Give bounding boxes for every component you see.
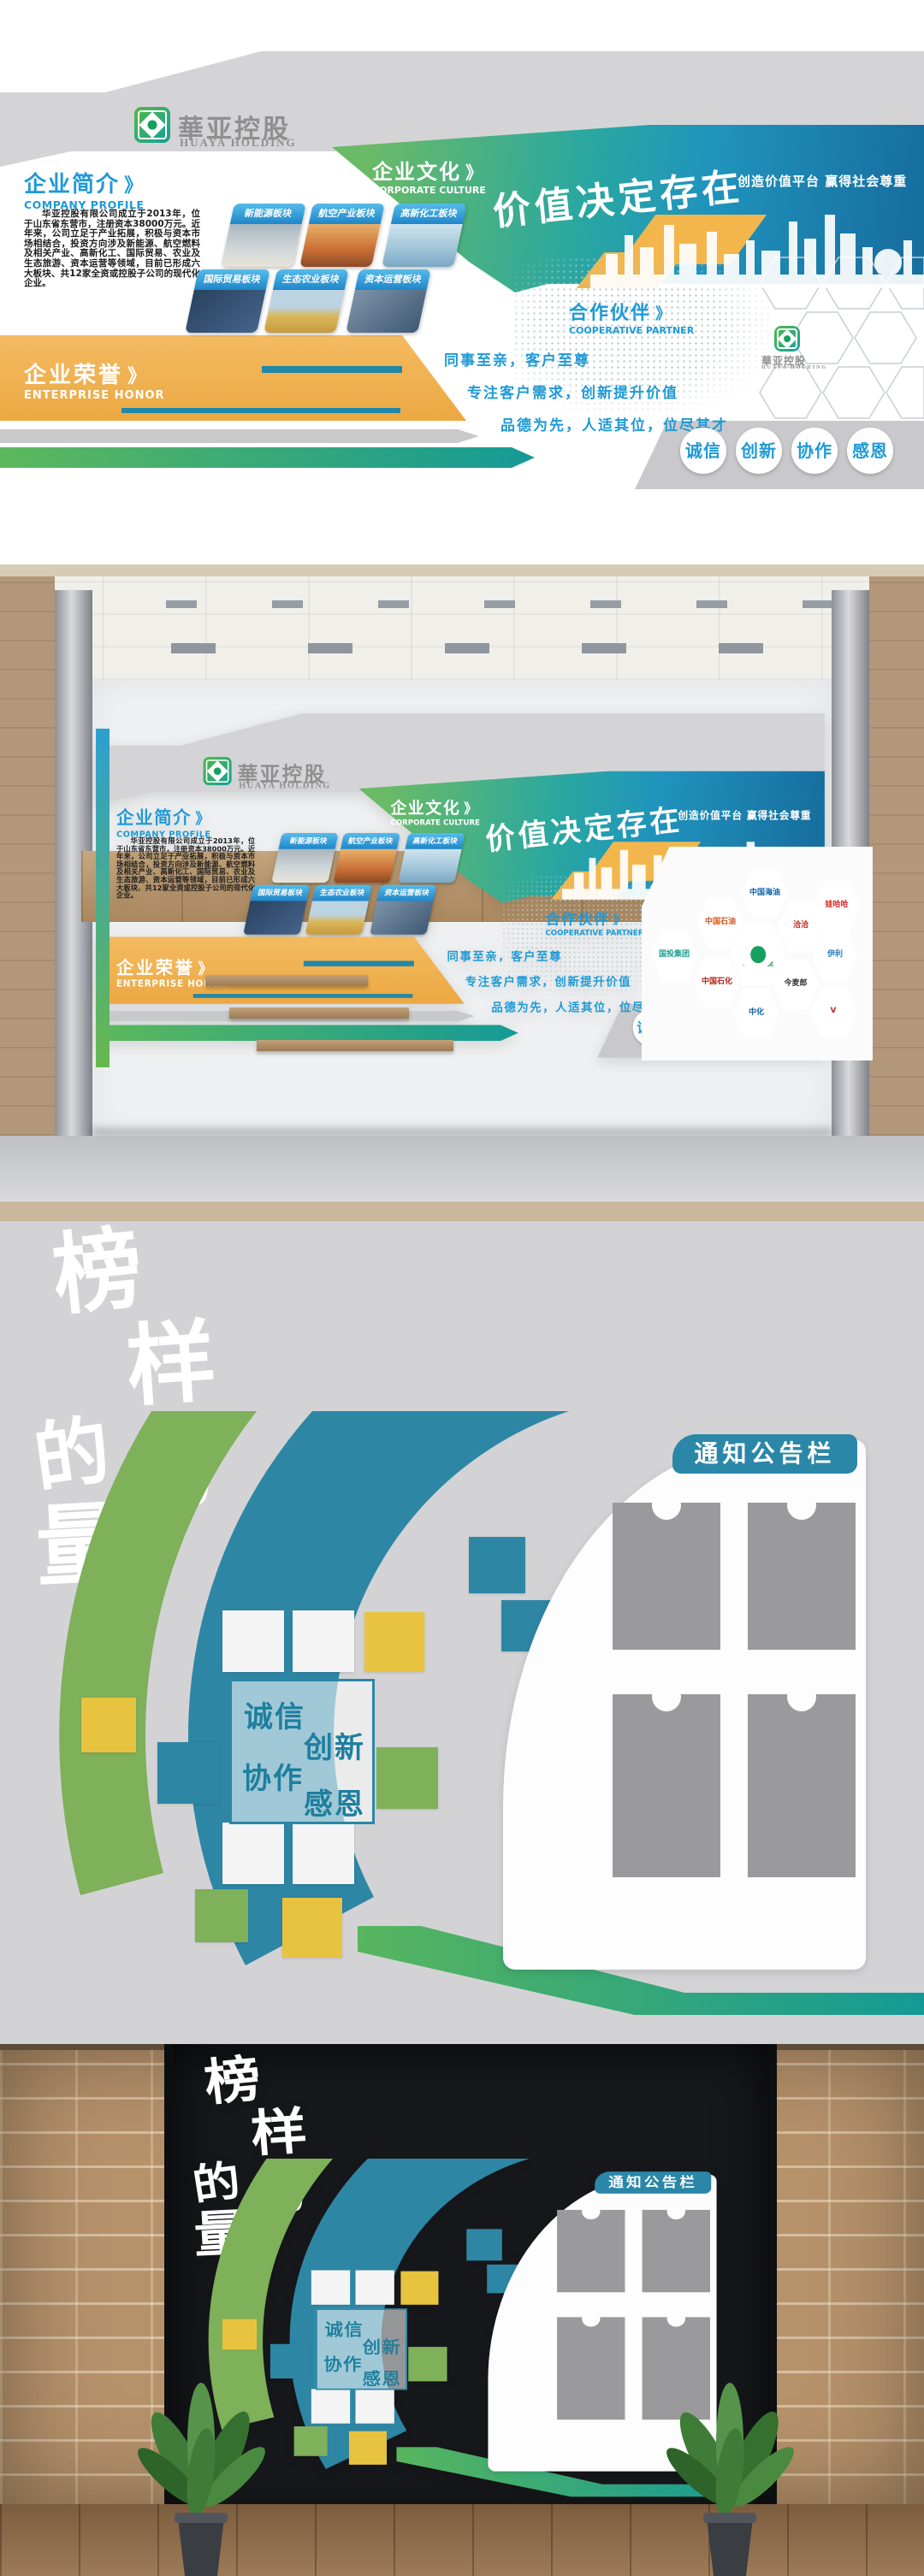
honor-heading: 企业荣誉 》 ENTERPRISE HONOR	[24, 357, 165, 402]
sector-tile: 国际贸易板块	[243, 885, 310, 935]
culture-title-cn: 企业文化	[390, 799, 460, 818]
ceiling-lights-row	[60, 600, 864, 608]
green-stripe	[98, 1025, 518, 1041]
side-wall-right	[869, 576, 924, 1223]
mosaic-square	[282, 1898, 342, 1958]
sector-tile: 高新化工板块	[382, 204, 467, 267]
sector-photo	[305, 901, 369, 935]
value-word: 创新	[304, 1724, 365, 1766]
mosaic-square	[349, 2431, 387, 2465]
value-circle: 感恩	[847, 428, 893, 474]
motto-line: 同事至亲，客户至尊	[447, 947, 562, 964]
mosaic-square	[408, 2347, 447, 2381]
title-char: 榜	[49, 1223, 146, 1320]
culture-subslogan: 创造价值平台 赢得社会尊重	[678, 808, 811, 823]
sector-photo	[346, 290, 427, 333]
value-word: 协作	[323, 2351, 362, 2374]
profile-body-text: 华亚控股有限公司成立于2013年，位于山东省东营市，注册资本38000万元。近年…	[116, 838, 255, 901]
sector-tile: 国际贸易板块	[185, 269, 270, 333]
culture-title-cn: 企业文化	[372, 160, 461, 184]
sector-tile: 资本运营板块	[370, 885, 436, 935]
sector-label: 国际贸易板块	[194, 269, 270, 290]
profile-heading: 企业简介 》 COMPANY PROFILE	[24, 167, 144, 211]
sector-tile: 航空产业板块	[334, 833, 400, 883]
mosaic-square	[466, 2229, 502, 2260]
profile-body-text: 华亚控股有限公司成立于2013年，位于山东省东营市，注册资本38000万元。近年…	[24, 210, 200, 289]
chevron-icon: 》	[655, 305, 671, 323]
culture-heading: 企业文化 》 CORPORATE CULTURE	[390, 795, 480, 827]
title-char: 样	[123, 1316, 218, 1411]
sector-tile: 生态农业板块	[264, 269, 349, 333]
mosaic-square	[222, 1610, 284, 1672]
wood-shelf	[229, 1007, 409, 1019]
sector-photo	[185, 290, 266, 333]
design1-placement: 華亚控股 HUAYA HOLDING 企业简介 》 COMPANY PROFIL…	[0, 47, 924, 516]
gray-stripe	[0, 429, 479, 443]
mosaic-square	[400, 2272, 438, 2305]
partner-label: 中国海油	[749, 889, 780, 898]
sector-photo	[334, 849, 397, 883]
mosaic-square	[469, 1537, 525, 1593]
value-word: 感恩	[363, 2366, 401, 2389]
sector-label: 新能源板块	[230, 204, 306, 224]
sector-label: 新能源板块	[279, 833, 339, 849]
sector-photo	[264, 290, 345, 333]
sector-tile: 新能源板块	[221, 204, 306, 267]
sector-label: 航空产业板块	[309, 204, 385, 224]
sector-label: 资本运营板块	[355, 269, 431, 290]
culture-title-en: CORPORATE CULTURE	[390, 818, 480, 827]
sector-label: 生态农业板块	[312, 885, 372, 901]
mosaic-square	[364, 1612, 424, 1672]
partner-label: 娃哈哈	[825, 901, 848, 910]
mosaic-square	[311, 2389, 350, 2423]
honor-title-cn: 企业荣誉	[24, 363, 123, 388]
render-dark: 榜 样 的 力 量 诚信	[0, 2044, 924, 2576]
value-word: 诚信	[244, 1693, 305, 1735]
value-word: 感恩	[304, 1781, 365, 1823]
partner-heading: 合作伙伴 》 COOPERATIVE PARTNER	[569, 298, 694, 336]
culture-wall-design: 華亚控股 HUAYA HOLDING 企业简介 》 COMPANY PROFIL…	[0, 47, 924, 516]
sector-label: 高新化工板块	[391, 204, 467, 224]
value-word: 创新	[363, 2334, 401, 2357]
motto-line: 同事至亲，客户至尊	[444, 348, 590, 369]
chevron-icon: 》	[127, 366, 146, 387]
wood-shelf	[205, 975, 368, 986]
logo-name-en: HUAYA HOLDING	[180, 136, 297, 150]
sector-tile: 高新化工板块	[398, 833, 465, 883]
sector-photo	[398, 849, 461, 883]
mosaic-square	[293, 1610, 354, 1672]
title-char: 榜	[202, 2053, 264, 2108]
honor-title-cn: 企业荣誉	[116, 958, 194, 978]
partner-label: 中化	[749, 1009, 764, 1018]
sector-tile: 航空产业板块	[299, 204, 385, 267]
sector-tile: 新能源板块	[271, 833, 338, 883]
motto-line: 专注客户需求，创新提升价值	[465, 972, 631, 990]
mosaic-square	[311, 2270, 350, 2304]
sector-label: 航空产业板块	[341, 833, 400, 849]
sector-label: 国际贸易板块	[250, 885, 310, 901]
teal-rule	[304, 961, 414, 966]
partner-title-cn: 合作伙伴	[545, 911, 610, 928]
huaya-logo-icon	[204, 757, 232, 785]
wood-shelf	[257, 1040, 453, 1051]
value-circle: 协作	[791, 428, 838, 474]
green-stripe	[0, 447, 535, 468]
mosaic-square	[294, 2426, 328, 2456]
huaya-logo-icon-small	[774, 326, 800, 352]
partner-title-en: COOPERATIVE PARTNER	[569, 325, 694, 336]
sector-label: 生态农业板块	[273, 269, 349, 290]
potted-plant-left	[128, 2366, 274, 2576]
teal-rule	[121, 408, 400, 413]
notice-pocket	[748, 1694, 856, 1877]
partner-title-cn: 合作伙伴	[569, 303, 651, 324]
partner-label: 国投集团	[659, 951, 690, 960]
value-word: 诚信	[325, 2317, 364, 2340]
sector-photo	[243, 901, 306, 935]
mosaic-square	[355, 2270, 394, 2304]
sector-photo	[221, 224, 302, 267]
culture-heading: 企业文化 》 CORPORATE CULTURE	[372, 155, 486, 196]
profile-title-cn: 企业简介	[24, 172, 120, 198]
partner-label: 伊利	[827, 951, 843, 960]
sector-tile: 生态农业板块	[305, 885, 372, 935]
sector-photo	[299, 224, 381, 267]
logo-name-en-small: HUAYA HOLDING	[761, 365, 827, 370]
mosaic-square	[376, 1747, 438, 1809]
mosaic-square	[81, 1698, 136, 1752]
huaya-logo-icon	[749, 940, 767, 959]
ceiling	[0, 564, 924, 680]
profile-heading: 企业简介 》 COMPANY PROFILE	[116, 804, 210, 839]
notice-pocket	[557, 2317, 625, 2419]
culture-subslogan: 创造价值平台 赢得社会尊重	[737, 172, 907, 190]
notice-board-title: 通知公告栏	[595, 2171, 711, 2194]
huaya-logo-icon	[134, 107, 170, 143]
mosaic-square	[222, 1823, 284, 1884]
sector-label: 高新化工板块	[405, 833, 465, 849]
partner-label: 中国石化	[702, 978, 732, 987]
notice-pocket	[613, 1694, 720, 1877]
ceiling-lights-row	[34, 643, 890, 653]
floor	[0, 1136, 924, 1204]
values-calligraphy-square: 诚信 创新 协作 感恩	[316, 2308, 407, 2390]
skyline-silhouette	[590, 210, 924, 288]
chevron-icon: 》	[465, 162, 483, 183]
value-circle: 诚信	[680, 428, 726, 474]
mosaic-square	[222, 2319, 257, 2350]
sector-photo	[271, 849, 335, 883]
side-wall-left	[0, 576, 55, 1223]
teal-rule	[262, 366, 402, 373]
partner-label: 中国石油	[705, 919, 736, 927]
notice-pocket	[748, 1503, 856, 1650]
notice-pocket	[557, 2210, 625, 2292]
motto-line: 专注客户需求，创新提升价值	[467, 381, 678, 402]
chevron-icon: 》	[195, 811, 210, 828]
chevron-icon: 》	[613, 913, 625, 928]
sector-photo	[382, 224, 463, 267]
value-word: 协作	[242, 1755, 304, 1797]
title-char: 样	[249, 2106, 309, 2159]
poster-canvas: 華亚控股 HUAYA HOLDING 企业简介 》 COMPANY PROFIL…	[0, 0, 924, 2576]
notice-pocket	[643, 2210, 710, 2292]
partner-label: 洽洽	[793, 922, 808, 931]
teal-rule	[193, 994, 413, 998]
partner-heading: 合作伙伴 》 COOPERATIVE PARTNER	[545, 907, 643, 937]
role-model-wall-design: 榜 样 的 力 量 诚信	[0, 1219, 924, 2023]
profile-title-cn: 企业简介	[116, 808, 192, 829]
mosaic-square	[355, 2389, 394, 2423]
partner-label: V	[831, 1007, 837, 1016]
gradient-edge-bar	[96, 729, 110, 1067]
mosaic-square	[157, 1742, 219, 1804]
mosaic-square	[270, 2344, 309, 2378]
sector-label: 资本运营板块	[376, 885, 436, 901]
culture-title-en: CORPORATE CULTURE	[372, 185, 486, 196]
values-calligraphy-square: 诚信 创新 协作 感恩	[229, 1679, 375, 1824]
partner-title-en: COOPERATIVE PARTNER	[545, 929, 643, 937]
logo-name-en: HUAYA HOLDING	[239, 780, 331, 791]
value-circle: 创新	[736, 428, 782, 474]
partner-label: 今麦郎	[784, 980, 807, 989]
notice-pocket	[613, 1503, 720, 1650]
potted-plant-right	[657, 2366, 803, 2576]
design2-placement: 榜 样 的 力 量 诚信	[0, 1219, 924, 2023]
chevron-icon: 》	[124, 175, 143, 197]
honor-title-en: ENTERPRISE HONOR	[24, 389, 165, 402]
mosaic-square	[195, 1889, 248, 1942]
sector-tile: 资本运营板块	[346, 269, 431, 333]
chevron-icon: 》	[464, 801, 477, 817]
notice-board-title: 通知公告栏	[672, 1434, 857, 1474]
sector-photo	[370, 901, 433, 935]
mosaic-square	[293, 1823, 354, 1884]
